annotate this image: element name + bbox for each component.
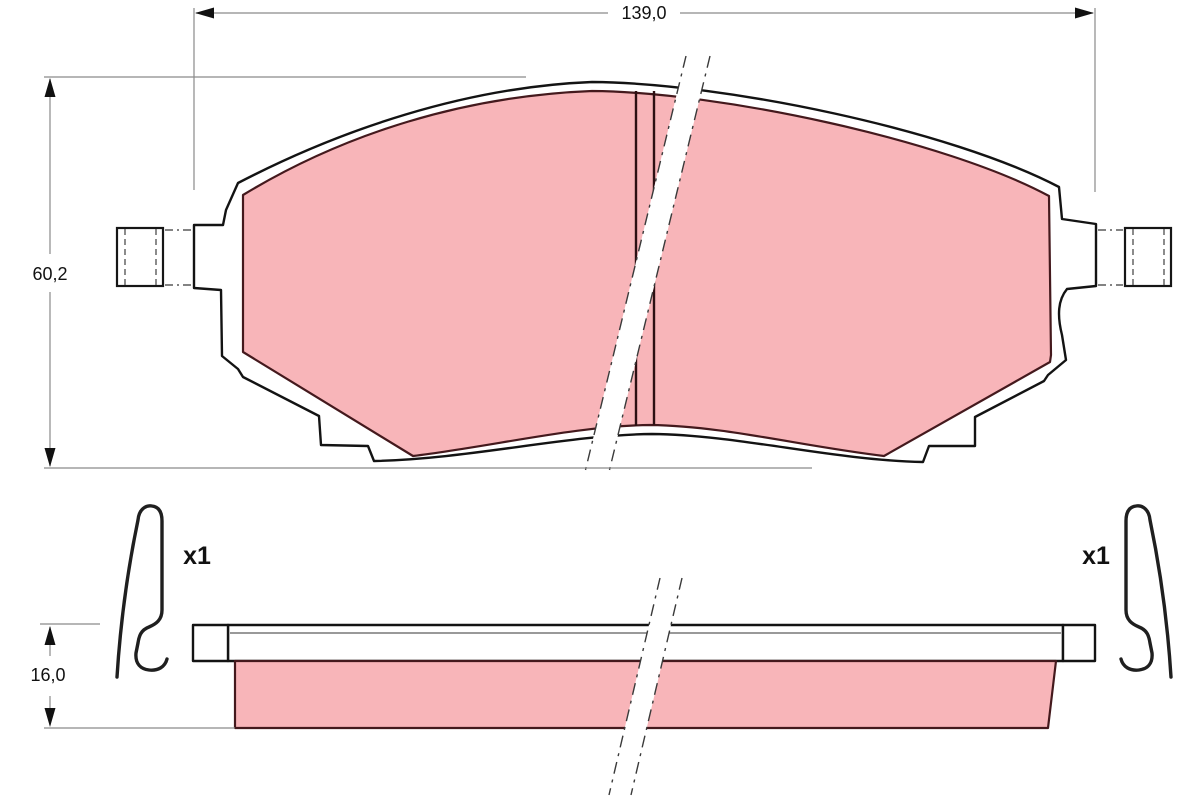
arrowhead-down xyxy=(45,448,56,467)
side-view xyxy=(193,578,1095,795)
dimension-thickness-label: 16,0 xyxy=(30,665,65,685)
arrowhead-right xyxy=(1075,8,1094,19)
spring-clip-right xyxy=(1121,506,1171,677)
arrowhead-down xyxy=(45,708,56,727)
plate-right-ear-side xyxy=(1063,625,1095,661)
clip-right-quantity-label: x1 xyxy=(1082,542,1110,570)
dimension-height-label: 60,2 xyxy=(32,264,67,284)
guide-pin-left xyxy=(117,228,192,286)
front-view xyxy=(117,56,1171,472)
arrowhead-up xyxy=(45,78,56,97)
brake-pad-technical-drawing: 139,0 60,2 16,0 x1 x1 xyxy=(0,0,1200,800)
arrowhead-up xyxy=(45,626,56,645)
arrowhead-left xyxy=(195,8,214,19)
plate-left-ear-side xyxy=(193,625,228,661)
guide-pin-left-body xyxy=(117,228,163,286)
guide-pin-right-body xyxy=(1125,228,1171,286)
drawing-canvas: 139,0 60,2 16,0 x1 x1 xyxy=(0,0,1200,800)
guide-pin-right xyxy=(1098,228,1171,286)
spring-clip-left xyxy=(117,506,167,677)
clip-left-quantity-label: x1 xyxy=(183,542,211,570)
dimension-width-label: 139,0 xyxy=(621,3,666,23)
